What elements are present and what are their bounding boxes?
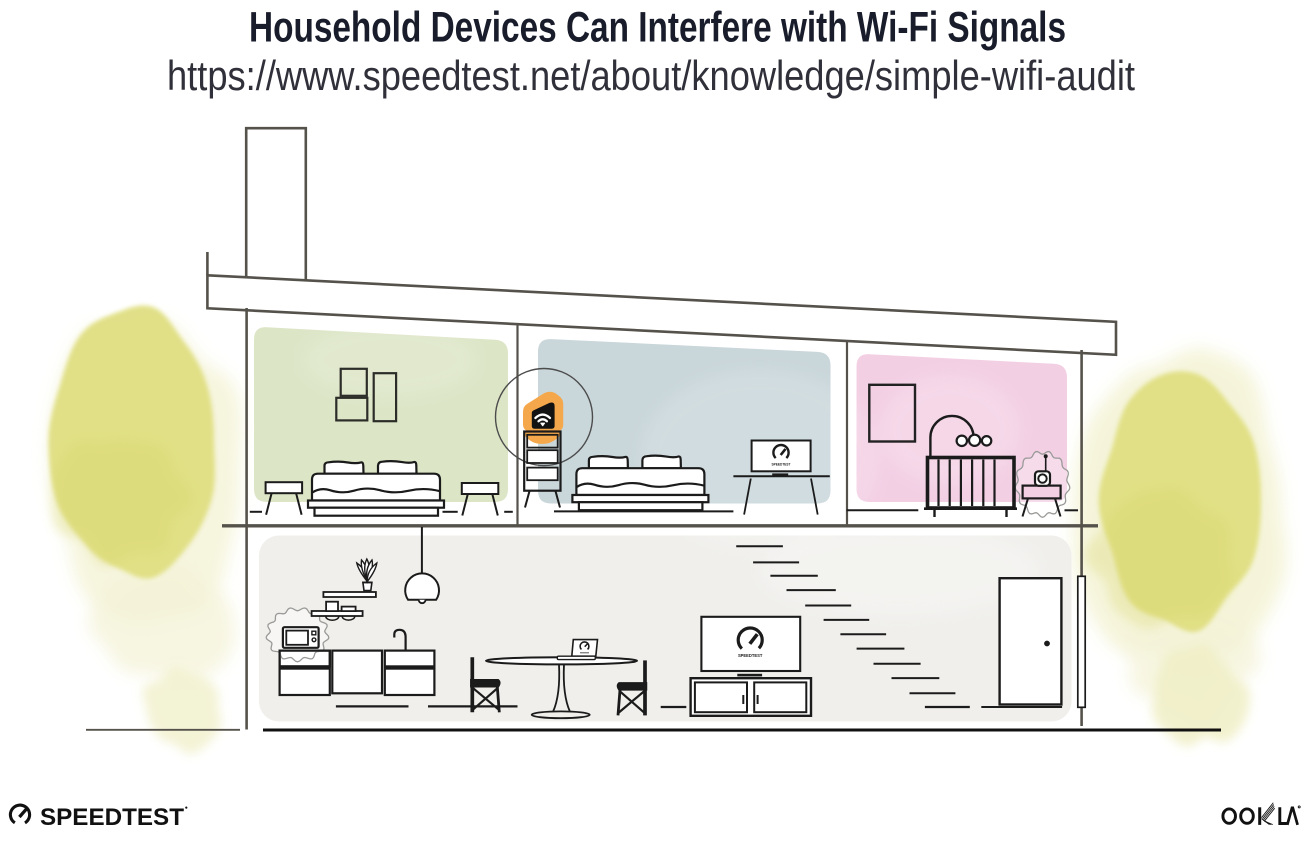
svg-text:SPEEDTEST: SPEEDTEST: [738, 653, 763, 658]
svg-text:https://www.speedtest.net/abou: https://www.speedtest.net/about/knowledg…: [167, 52, 1135, 99]
svg-text:SPEEDTEST: SPEEDTEST: [772, 462, 791, 467]
svg-text:SPEEDTEST: SPEEDTEST: [40, 804, 184, 831]
svg-text:Household Devices Can Interfer: Household Devices Can Interfere with Wi-…: [249, 4, 1066, 52]
